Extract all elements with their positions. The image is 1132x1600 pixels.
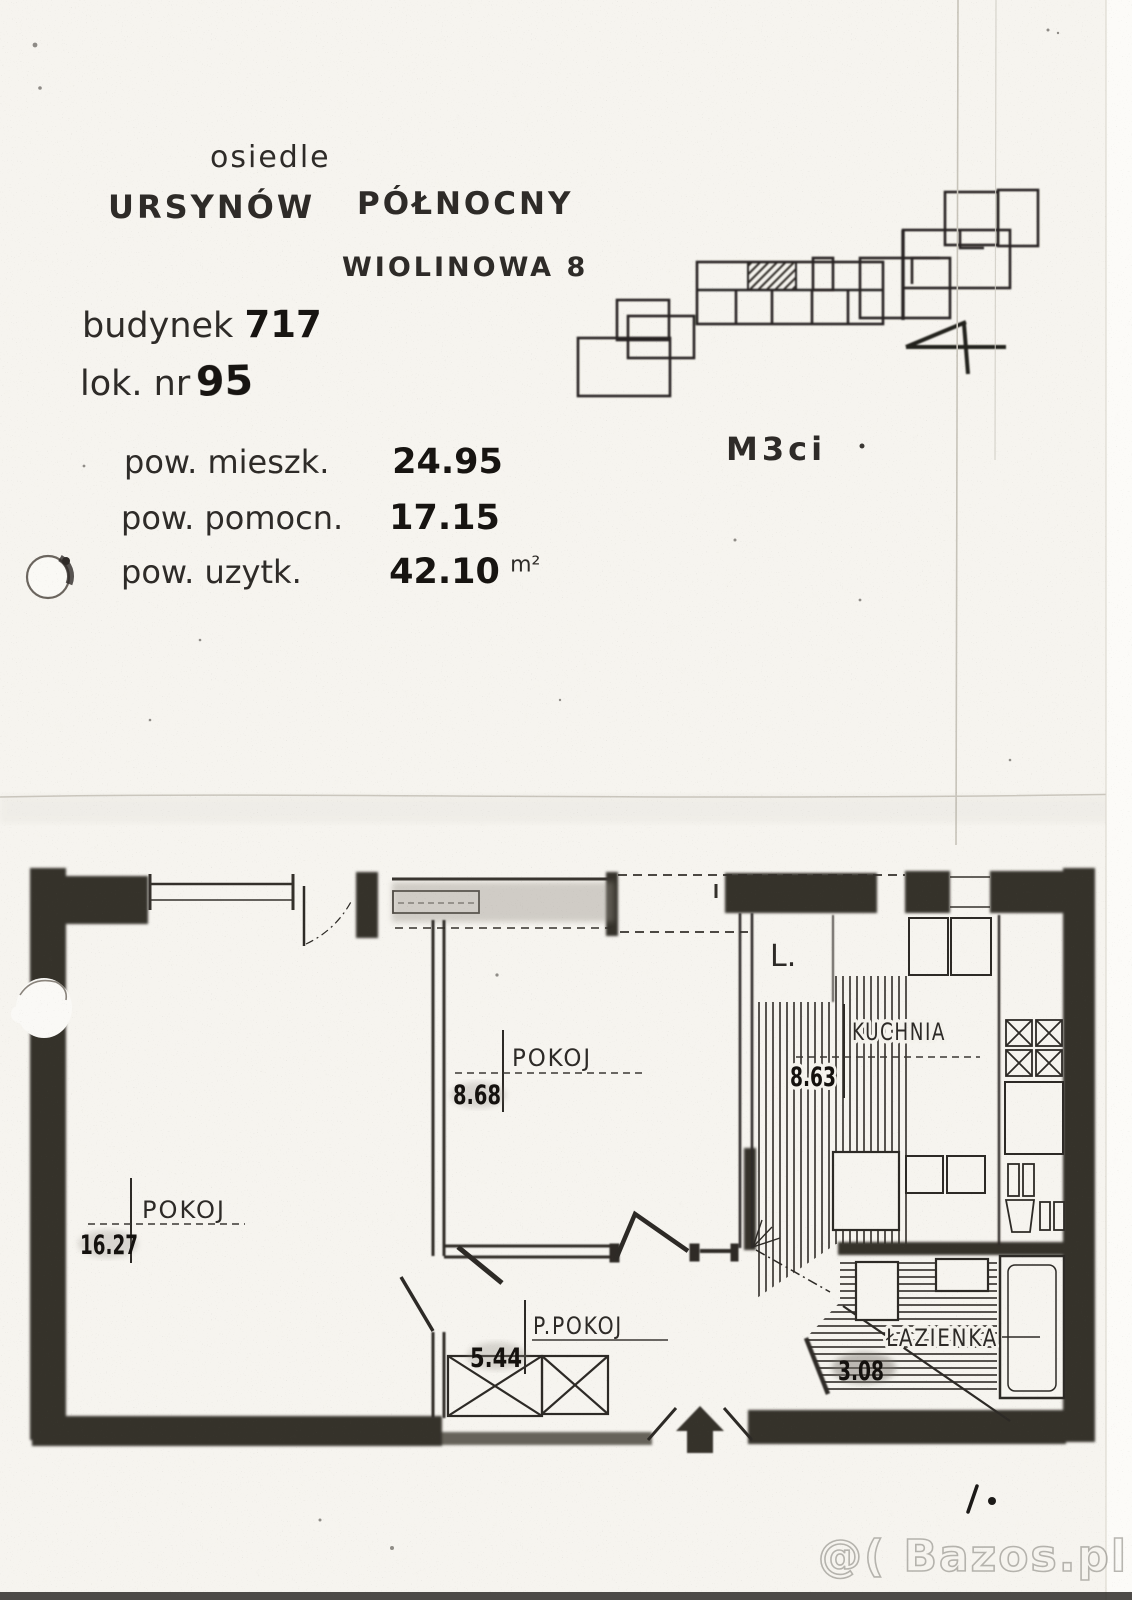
scanned-floorplan-page: osiedle URSYNÓW PÓŁNOCNY WIOLINOWA 8 bud…	[0, 0, 1132, 1600]
scan-artifacts	[0, 0, 1132, 1600]
watermark: @( Bazos.pl	[818, 1531, 1128, 1582]
plan-drawing: POKOJ 16.27 POKOJ 8.68 KUCHNIA 8.63 P.	[0, 0, 1132, 1600]
